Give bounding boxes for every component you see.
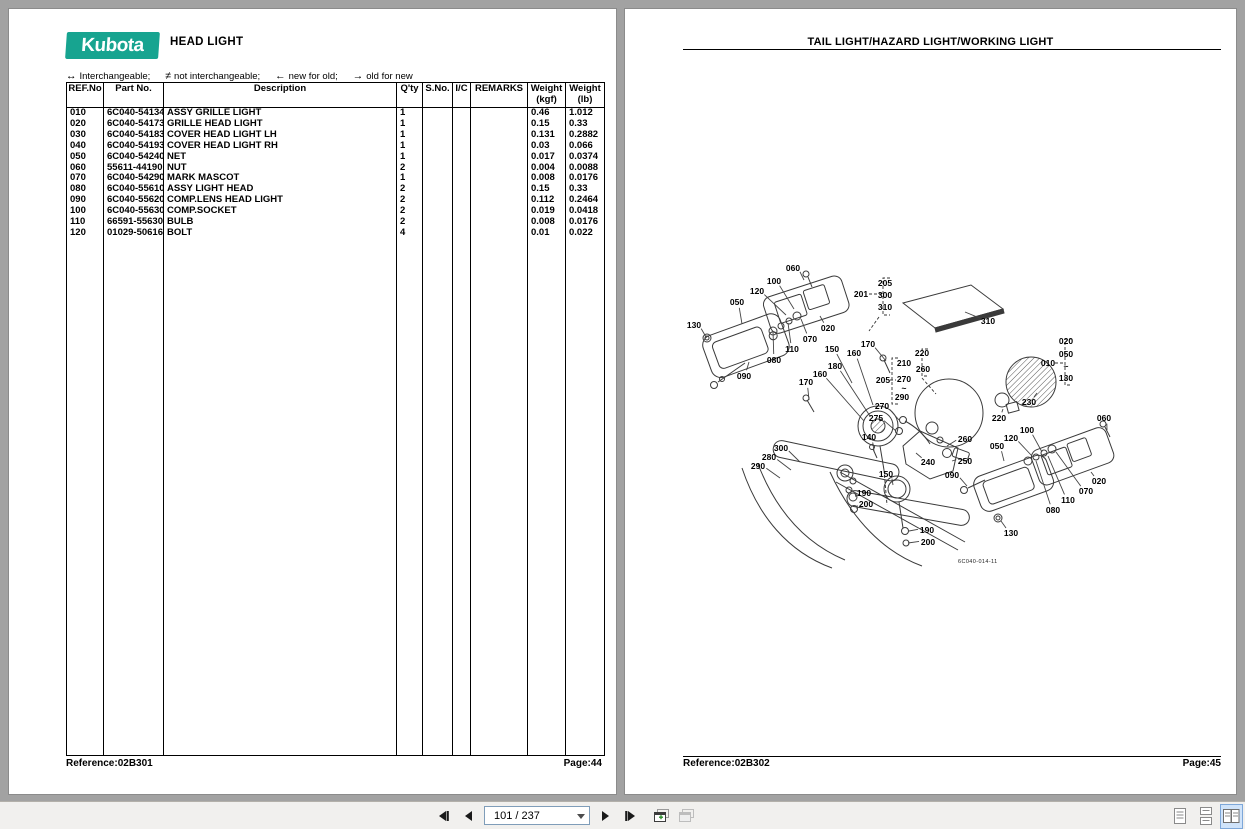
table-row: 1006C040-55630COMP.SOCKET20.0190.0418 <box>67 206 605 217</box>
table-cell: MARK MASCOT <box>164 173 397 184</box>
table-cell: 0.33 <box>566 119 605 130</box>
table-cell: 0.066 <box>566 141 605 152</box>
table-cell: 020 <box>67 119 104 130</box>
table-cell: 1 <box>397 130 423 141</box>
table-cell <box>471 108 528 119</box>
table-cell <box>423 141 453 152</box>
table-cell: 6C040-54240 <box>104 152 164 163</box>
table-cell: 0.131 <box>528 130 566 141</box>
legend-item: ≠not interchangeable; <box>165 70 260 82</box>
table-cell: 050 <box>67 152 104 163</box>
table-cell <box>453 141 471 152</box>
table-cell: 6C040-54193 <box>104 141 164 152</box>
page-navigation: 101 / 237 <box>434 802 696 829</box>
table-cell <box>423 152 453 163</box>
table-cell <box>453 152 471 163</box>
table-cell <box>453 130 471 141</box>
detach-window-button[interactable] <box>651 805 671 826</box>
table-cell <box>453 184 471 195</box>
table-cell <box>104 239 164 756</box>
table-cell: 0.112 <box>528 195 566 206</box>
table-cell: 090 <box>67 195 104 206</box>
table-cell: 6C040-54173 <box>104 119 164 130</box>
table-cell: 0.004 <box>528 163 566 174</box>
table-cell: 1 <box>397 141 423 152</box>
table-cell: 0.019 <box>528 206 566 217</box>
continuous-view-button[interactable] <box>1195 805 1216 828</box>
table-cell: 2 <box>397 184 423 195</box>
cascade-window-icon <box>678 808 695 823</box>
table-cell: COVER HEAD LIGHT LH <box>164 130 397 141</box>
table-cell <box>423 195 453 206</box>
table-cell: NET <box>164 152 397 163</box>
table-cell <box>423 217 453 228</box>
table-cell <box>453 163 471 174</box>
table-cell <box>453 173 471 184</box>
catalog-page-right: TAIL LIGHT/HAZARD LIGHT/WORKING LIGHT Re… <box>624 8 1237 795</box>
column-header: Weight(lb) <box>566 83 605 108</box>
table-cell <box>164 239 397 756</box>
table-cell: 0.022 <box>566 228 605 239</box>
table-cell: GRILLE HEAD LIGHT <box>164 119 397 130</box>
table-cell: BULB <box>164 217 397 228</box>
table-cell: 6C040-54183 <box>104 130 164 141</box>
table-cell <box>423 228 453 239</box>
table-cell <box>471 228 528 239</box>
cascade-window-button[interactable] <box>676 805 696 826</box>
table-cell <box>453 239 471 756</box>
page-number-combobox[interactable]: 101 / 237 <box>484 806 590 825</box>
table-cell: 0.017 <box>528 152 566 163</box>
table-filler-row <box>67 239 605 756</box>
table-cell <box>423 130 453 141</box>
table-cell: 0.0374 <box>566 152 605 163</box>
parts-table-wrap: REF.NoPart No.DescriptionQ'tyS.No.I/CREM… <box>66 82 605 756</box>
table-cell <box>471 217 528 228</box>
table-cell: 1.012 <box>566 108 605 119</box>
interchangeability-legend: ↔Interchangeable;≠not interchangeable;←n… <box>66 70 413 82</box>
table-cell: 120 <box>67 228 104 239</box>
table-cell: 0.0176 <box>566 173 605 184</box>
table-cell <box>566 239 605 756</box>
table-cell: 110 <box>67 217 104 228</box>
footer-rule <box>683 756 1221 757</box>
first-page-button[interactable] <box>434 805 454 826</box>
table-cell: 6C040-55610 <box>104 184 164 195</box>
table-cell <box>423 206 453 217</box>
table-cell: COVER HEAD LIGHT RH <box>164 141 397 152</box>
table-cell <box>397 239 423 756</box>
table-row: 0706C040-54290MARK MASCOT10.0080.0176 <box>67 173 605 184</box>
table-cell: 100 <box>67 206 104 217</box>
table-cell <box>423 184 453 195</box>
table-cell: 66591-55630 <box>104 217 164 228</box>
single-page-icon <box>1173 807 1187 825</box>
new-window-icon <box>653 808 670 823</box>
table-cell <box>528 239 566 756</box>
table-cell: 0.2464 <box>566 195 605 206</box>
table-cell: 0.15 <box>528 184 566 195</box>
table-cell <box>67 239 104 756</box>
table-row: 0806C040-55610ASSY LIGHT HEAD20.150.33 <box>67 184 605 195</box>
table-cell: 6C040-55630 <box>104 206 164 217</box>
table-cell: 0.01 <box>528 228 566 239</box>
table-cell: 010 <box>67 108 104 119</box>
table-cell: 040 <box>67 141 104 152</box>
table-cell: 1 <box>397 108 423 119</box>
column-header: Part No. <box>104 83 164 108</box>
column-header: REMARKS <box>471 83 528 108</box>
table-cell <box>453 108 471 119</box>
table-cell <box>453 217 471 228</box>
table-cell: NUT <box>164 163 397 174</box>
column-header: S.No. <box>423 83 453 108</box>
table-cell <box>453 228 471 239</box>
table-cell <box>471 152 528 163</box>
page-footer: Reference:02B301 Page:44 <box>66 758 602 769</box>
facing-pages-view-button[interactable] <box>1221 805 1242 828</box>
table-cell <box>471 184 528 195</box>
single-page-view-button[interactable] <box>1169 805 1190 828</box>
page-title: TAIL LIGHT/HAZARD LIGHT/WORKING LIGHT <box>625 36 1236 48</box>
table-cell <box>471 206 528 217</box>
table-row: 0506C040-54240NET10.0170.0374 <box>67 152 605 163</box>
kubota-logo: Kubota <box>65 32 160 59</box>
table-row: 0306C040-54183COVER HEAD LIGHT LH10.1310… <box>67 130 605 141</box>
table-row: 12001029-50616BOLT40.010.022 <box>67 228 605 239</box>
table-cell: 070 <box>67 173 104 184</box>
table-row: 11066591-55630BULB20.0080.0176 <box>67 217 605 228</box>
table-cell: BOLT <box>164 228 397 239</box>
table-cell: 0.008 <box>528 173 566 184</box>
table-cell: 060 <box>67 163 104 174</box>
legend-item: →old for new <box>353 70 413 82</box>
table-cell: 0.03 <box>528 141 566 152</box>
table-cell: ASSY LIGHT HEAD <box>164 184 397 195</box>
table-row: 0106C040-54134ASSY GRILLE LIGHT10.461.01… <box>67 108 605 119</box>
page-footer: Reference:02B302 Page:45 <box>683 758 1221 769</box>
table-cell <box>471 163 528 174</box>
table-cell: 0.2882 <box>566 130 605 141</box>
last-page-icon <box>624 810 636 822</box>
table-cell: 2 <box>397 195 423 206</box>
table-cell: 6C040-54134 <box>104 108 164 119</box>
table-cell: 2 <box>397 206 423 217</box>
last-page-button[interactable] <box>620 805 640 826</box>
table-cell <box>471 130 528 141</box>
reference-label: Reference:02B302 <box>683 758 770 769</box>
catalog-page-left: Kubota HEAD LIGHT ↔Interchangeable;≠not … <box>8 8 617 795</box>
table-cell <box>471 119 528 130</box>
table-cell <box>471 239 528 756</box>
table-cell: 0.0088 <box>566 163 605 174</box>
column-header: Q'ty <box>397 83 423 108</box>
column-header: Description <box>164 83 397 108</box>
table-row: 0406C040-54193COVER HEAD LIGHT RH10.030.… <box>67 141 605 152</box>
previous-page-icon <box>463 810 475 822</box>
table-cell <box>423 173 453 184</box>
table-cell: 0.008 <box>528 217 566 228</box>
column-header: REF.No <box>67 83 104 108</box>
table-cell: ASSY GRILLE LIGHT <box>164 108 397 119</box>
table-cell: 2 <box>397 217 423 228</box>
previous-page-button[interactable] <box>459 805 479 826</box>
table-cell: 1 <box>397 173 423 184</box>
table-cell: COMP.LENS HEAD LIGHT <box>164 195 397 206</box>
table-cell: 0.46 <box>528 108 566 119</box>
column-header: I/C <box>453 83 471 108</box>
continuous-pages-icon <box>1199 807 1213 825</box>
table-cell: 4 <box>397 228 423 239</box>
table-cell <box>453 119 471 130</box>
reference-label: Reference:02B301 <box>66 758 153 769</box>
table-cell <box>453 195 471 206</box>
table-cell <box>423 239 453 756</box>
table-cell <box>471 173 528 184</box>
title-rule <box>683 49 1221 50</box>
table-cell <box>471 195 528 206</box>
table-cell <box>423 119 453 130</box>
table-row: 06055611-44190NUT20.0040.0088 <box>67 163 605 174</box>
combobox-dropdown-icon <box>577 814 585 819</box>
page-indicator-value: 101 / 237 <box>494 810 540 822</box>
page-number-label: Page:45 <box>1183 758 1221 769</box>
table-row: 0206C040-54173GRILLE HEAD LIGHT10.150.33 <box>67 119 605 130</box>
table-cell: COMP.SOCKET <box>164 206 397 217</box>
next-page-button[interactable] <box>595 805 615 826</box>
table-cell: 01029-50616 <box>104 228 164 239</box>
legend-item: ↔Interchangeable; <box>66 70 150 82</box>
table-cell: 2 <box>397 163 423 174</box>
table-cell: 6C040-55620 <box>104 195 164 206</box>
table-cell <box>453 206 471 217</box>
table-cell: 0.0418 <box>566 206 605 217</box>
viewer-toolbar: 101 / 237 <box>0 801 1245 829</box>
page-title: HEAD LIGHT <box>170 36 243 48</box>
table-cell: 0.33 <box>566 184 605 195</box>
parts-table: REF.NoPart No.DescriptionQ'tyS.No.I/CREM… <box>66 82 605 756</box>
table-cell <box>423 108 453 119</box>
table-cell <box>423 163 453 174</box>
table-cell <box>471 141 528 152</box>
first-page-icon <box>438 810 450 822</box>
table-cell: 6C040-54290 <box>104 173 164 184</box>
table-cell: 1 <box>397 152 423 163</box>
table-cell: 1 <box>397 119 423 130</box>
next-page-icon <box>599 810 611 822</box>
table-cell: 0.15 <box>528 119 566 130</box>
table-cell: 080 <box>67 184 104 195</box>
table-row: 0906C040-55620COMP.LENS HEAD LIGHT20.112… <box>67 195 605 206</box>
page-layout-switcher <box>1169 804 1242 828</box>
facing-pages-icon <box>1223 807 1240 825</box>
table-cell: 0.0176 <box>566 217 605 228</box>
column-header: Weight(kgf) <box>528 83 566 108</box>
page-number-label: Page:44 <box>564 758 602 769</box>
table-cell: 030 <box>67 130 104 141</box>
legend-item: ←new for old; <box>275 70 338 82</box>
table-cell: 55611-44190 <box>104 163 164 174</box>
